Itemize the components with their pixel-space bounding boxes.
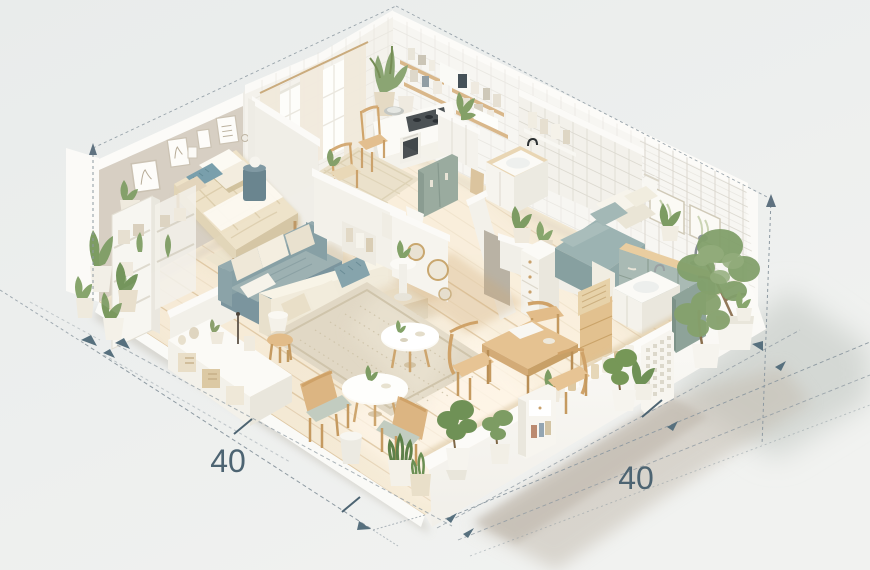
svg-text:40: 40: [618, 460, 654, 496]
svg-text:40: 40: [210, 443, 246, 479]
